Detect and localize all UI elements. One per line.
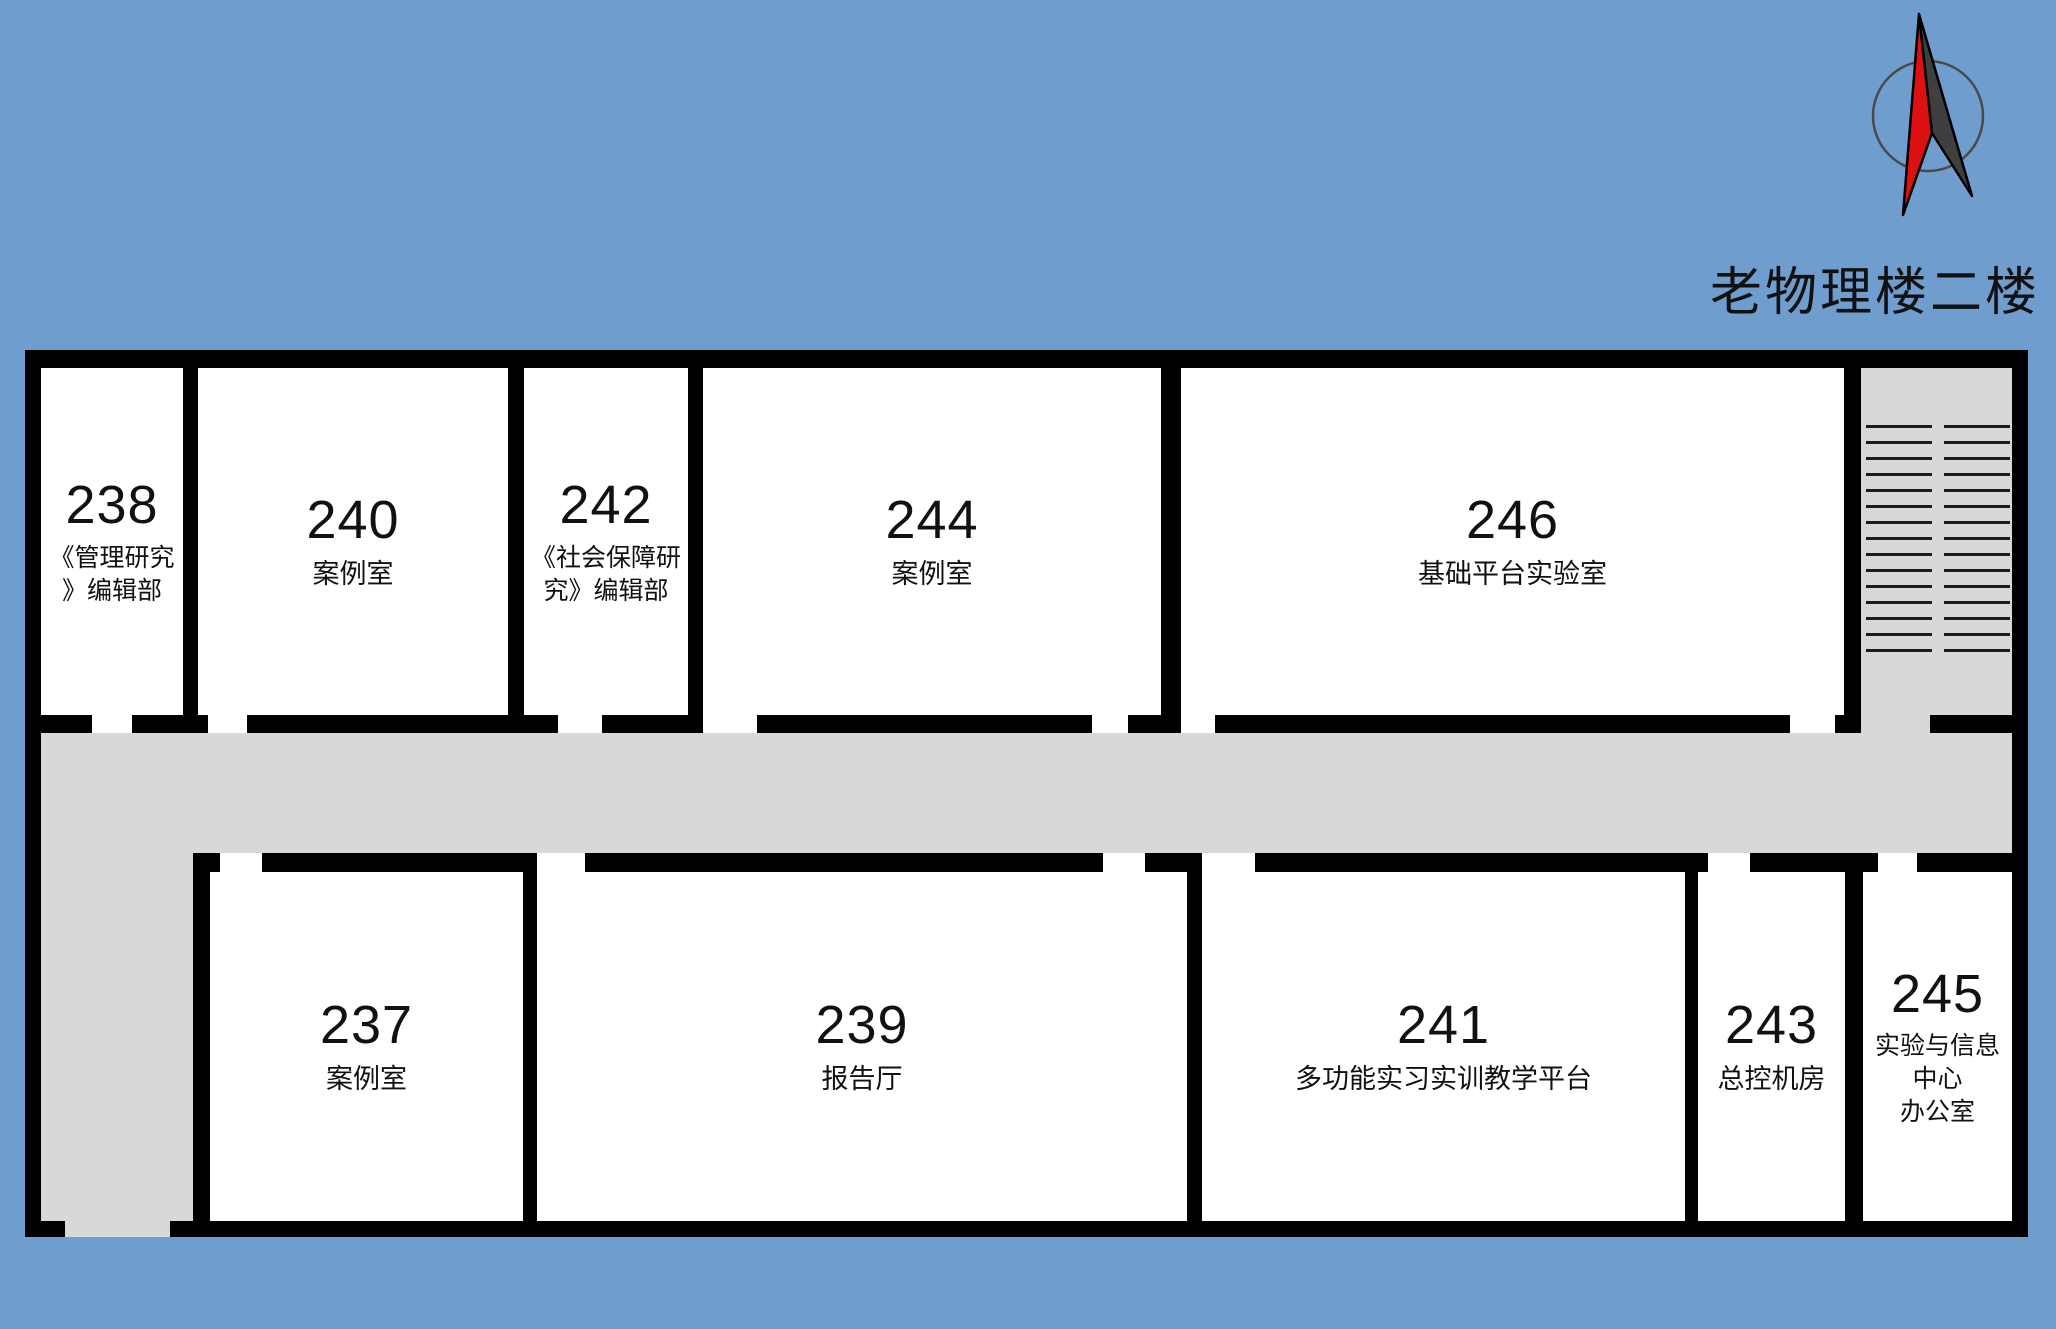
- room-number: 243: [1725, 995, 1818, 1055]
- room-number: 238: [65, 475, 158, 535]
- corridor-main: [41, 733, 2012, 853]
- room-label: 案例室: [892, 557, 973, 593]
- wall-segment: [1187, 853, 1202, 1221]
- wall-segment: [1215, 715, 1790, 733]
- room-244: 244 案例室: [703, 368, 1161, 715]
- room-number: 245: [1891, 964, 1984, 1024]
- wall-segment: [1685, 853, 1698, 1221]
- room-number: 244: [885, 490, 978, 550]
- wall-segment: [132, 715, 198, 733]
- stairwell-opening: [1861, 715, 1930, 733]
- room-label: 案例室: [326, 1062, 407, 1098]
- wall-segment: [1161, 368, 1181, 733]
- wall-segment: [193, 853, 210, 1221]
- room-label: 实验与信息 中心 办公室: [1875, 1030, 2000, 1129]
- room-245: 245 实验与信息 中心 办公室: [1863, 872, 2012, 1221]
- room-label: 报告厅: [822, 1062, 903, 1098]
- stair-treads-left: [1866, 425, 1932, 661]
- wall-segment: [1844, 368, 1861, 733]
- room-240: 240 案例室: [198, 368, 508, 715]
- wall-segment: [602, 715, 703, 733]
- outer-wall-top: [25, 350, 2028, 368]
- north-arrow-icon: [1865, 8, 1995, 223]
- room-246: 246 基础平台实验室: [1181, 368, 1844, 715]
- wall-segment: [262, 853, 523, 872]
- wall-segment: [757, 715, 1092, 733]
- outer-wall-bottom: [170, 1221, 2028, 1237]
- room-number: 242: [559, 475, 652, 535]
- room-number: 241: [1397, 995, 1490, 1055]
- floor-title: 老物理楼二楼: [1710, 250, 2040, 325]
- wall-segment: [1917, 853, 2012, 872]
- wall-segment: [524, 715, 558, 733]
- room-label: 总控机房: [1718, 1062, 1826, 1098]
- wall-segment: [247, 715, 508, 733]
- wall-segment: [508, 368, 524, 733]
- room-number: 240: [306, 490, 399, 550]
- wall-segment: [523, 853, 537, 1221]
- room-label: 基础平台实验室: [1418, 557, 1607, 593]
- floor-plan-canvas: 老物理楼二楼 238 《管理研究 》编辑部: [0, 0, 2056, 1329]
- wall-segment: [688, 368, 703, 733]
- corridor-south-exit: [65, 1221, 170, 1237]
- room-number: 246: [1466, 490, 1559, 550]
- outer-wall-left: [25, 350, 41, 1237]
- wall-segment: [1255, 853, 1708, 872]
- room-243: 243 总控机房: [1698, 872, 1845, 1221]
- room-number: 239: [815, 995, 908, 1055]
- room-237: 237 案例室: [210, 872, 523, 1221]
- room-label: 多功能实习实训教学平台: [1295, 1062, 1592, 1098]
- room-242: 242 《社会保障研 究》编辑部: [524, 368, 688, 715]
- room-number: 237: [320, 995, 413, 1055]
- room-241: 241 多功能实习实训教学平台: [1202, 872, 1685, 1221]
- room-label: 《管理研究 》编辑部: [49, 542, 174, 608]
- room-label: 案例室: [313, 557, 394, 593]
- corridor-west-branch: [41, 853, 193, 1221]
- wall-segment: [1845, 853, 1863, 1221]
- room-239: 239 报告厅: [537, 872, 1187, 1221]
- outer-wall-bottom: [25, 1221, 65, 1237]
- room-238: 238 《管理研究 》编辑部: [41, 368, 183, 715]
- wall-segment: [585, 853, 1103, 872]
- wall-segment: [1128, 715, 1161, 733]
- outer-wall-right: [2012, 350, 2028, 1237]
- wall-segment: [1930, 715, 2012, 733]
- wall-segment: [183, 368, 198, 733]
- wall-segment: [1835, 715, 1861, 733]
- room-label: 《社会保障研 究》编辑部: [531, 542, 681, 608]
- stair-treads-right: [1944, 425, 2010, 661]
- wall-segment: [198, 715, 208, 733]
- wall-segment: [41, 715, 92, 733]
